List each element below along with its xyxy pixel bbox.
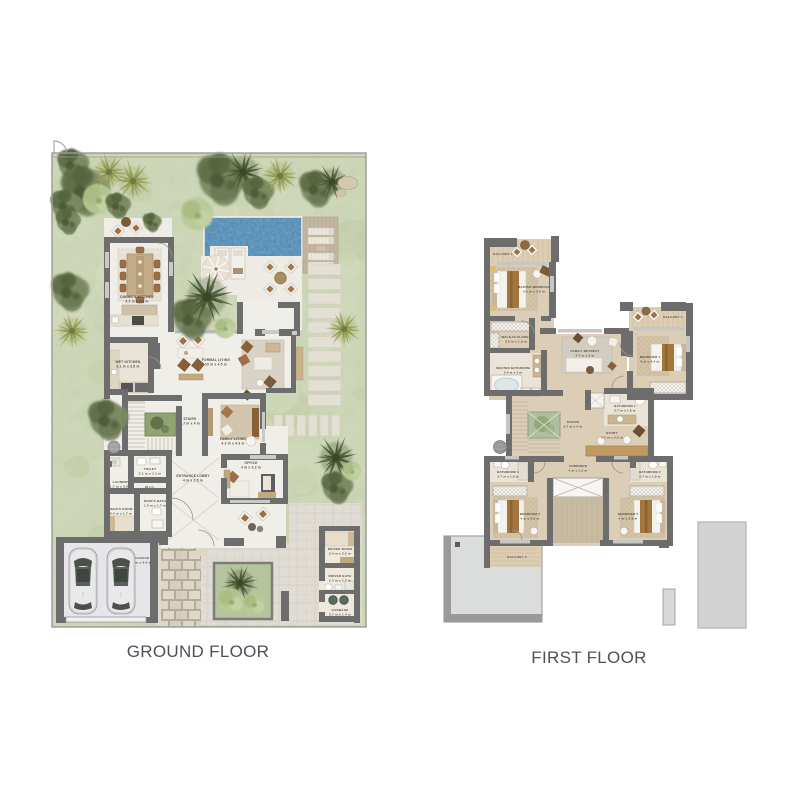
svg-text:BEDROOM 24 m x 3.8 m: BEDROOM 24 m x 3.8 m bbox=[618, 512, 639, 521]
svg-text:BATHROOM 12.7 m x 1.8 m: BATHROOM 12.7 m x 1.8 m bbox=[614, 404, 636, 413]
svg-text:BATHROOM 32.7 m x 1.8 m: BATHROOM 32.7 m x 1.8 m bbox=[497, 470, 519, 479]
svg-text:FIRST FLOOR: FIRST FLOOR bbox=[531, 648, 646, 667]
svg-text:BEDROOM 34 m x 3.8 m: BEDROOM 34 m x 3.8 m bbox=[520, 512, 541, 521]
svg-text:BALCONY 2: BALCONY 2 bbox=[493, 252, 513, 256]
svg-text:MAID'S ROOM2.2 m x 1.7 m: MAID'S ROOM2.2 m x 1.7 m bbox=[109, 507, 133, 516]
svg-text:DRIVER ROOM2.4 m x 3.5 m: DRIVER ROOM2.4 m x 3.5 m bbox=[328, 547, 353, 556]
svg-text:WET KITCHEN3.1 m x 3.6 m: WET KITCHEN3.1 m x 3.6 m bbox=[116, 360, 141, 369]
svg-text:BEDROOM 15 m x 4.4 m: BEDROOM 15 m x 4.4 m bbox=[640, 355, 661, 364]
svg-text:BATHROOM 22.7 m x 1.8 m: BATHROOM 22.7 m x 1.8 m bbox=[639, 470, 661, 479]
svg-text:DRIVER BATH2.4 m x 1.7 m: DRIVER BATH2.4 m x 1.7 m bbox=[328, 574, 351, 583]
svg-text:FAMILY LIVING4.3 m x 4.3 m: FAMILY LIVING4.3 m x 4.3 m bbox=[220, 437, 246, 446]
svg-text:GARBAGE2.7 m x 1.4 m: GARBAGE2.7 m x 1.4 m bbox=[329, 608, 351, 617]
svg-text:BALCONY 3: BALCONY 3 bbox=[507, 555, 527, 559]
svg-text:GROUND FLOOR: GROUND FLOOR bbox=[127, 642, 269, 661]
svg-text:FORMAL LIVING10 m x 4.5 m: FORMAL LIVING10 m x 4.5 m bbox=[202, 358, 231, 367]
svg-text:MAID'S BATH1.5 m x 1.7 m: MAID'S BATH1.5 m x 1.7 m bbox=[144, 499, 166, 508]
svg-text:WALK-IN CLOSET3.6 m x 1.9 m: WALK-IN CLOSET3.6 m x 1.9 m bbox=[501, 335, 530, 344]
svg-text:CORRIDOR4 m x 1.2 m: CORRIDOR4 m x 1.2 m bbox=[569, 464, 588, 473]
svg-text:BALCONY 1: BALCONY 1 bbox=[663, 315, 683, 319]
